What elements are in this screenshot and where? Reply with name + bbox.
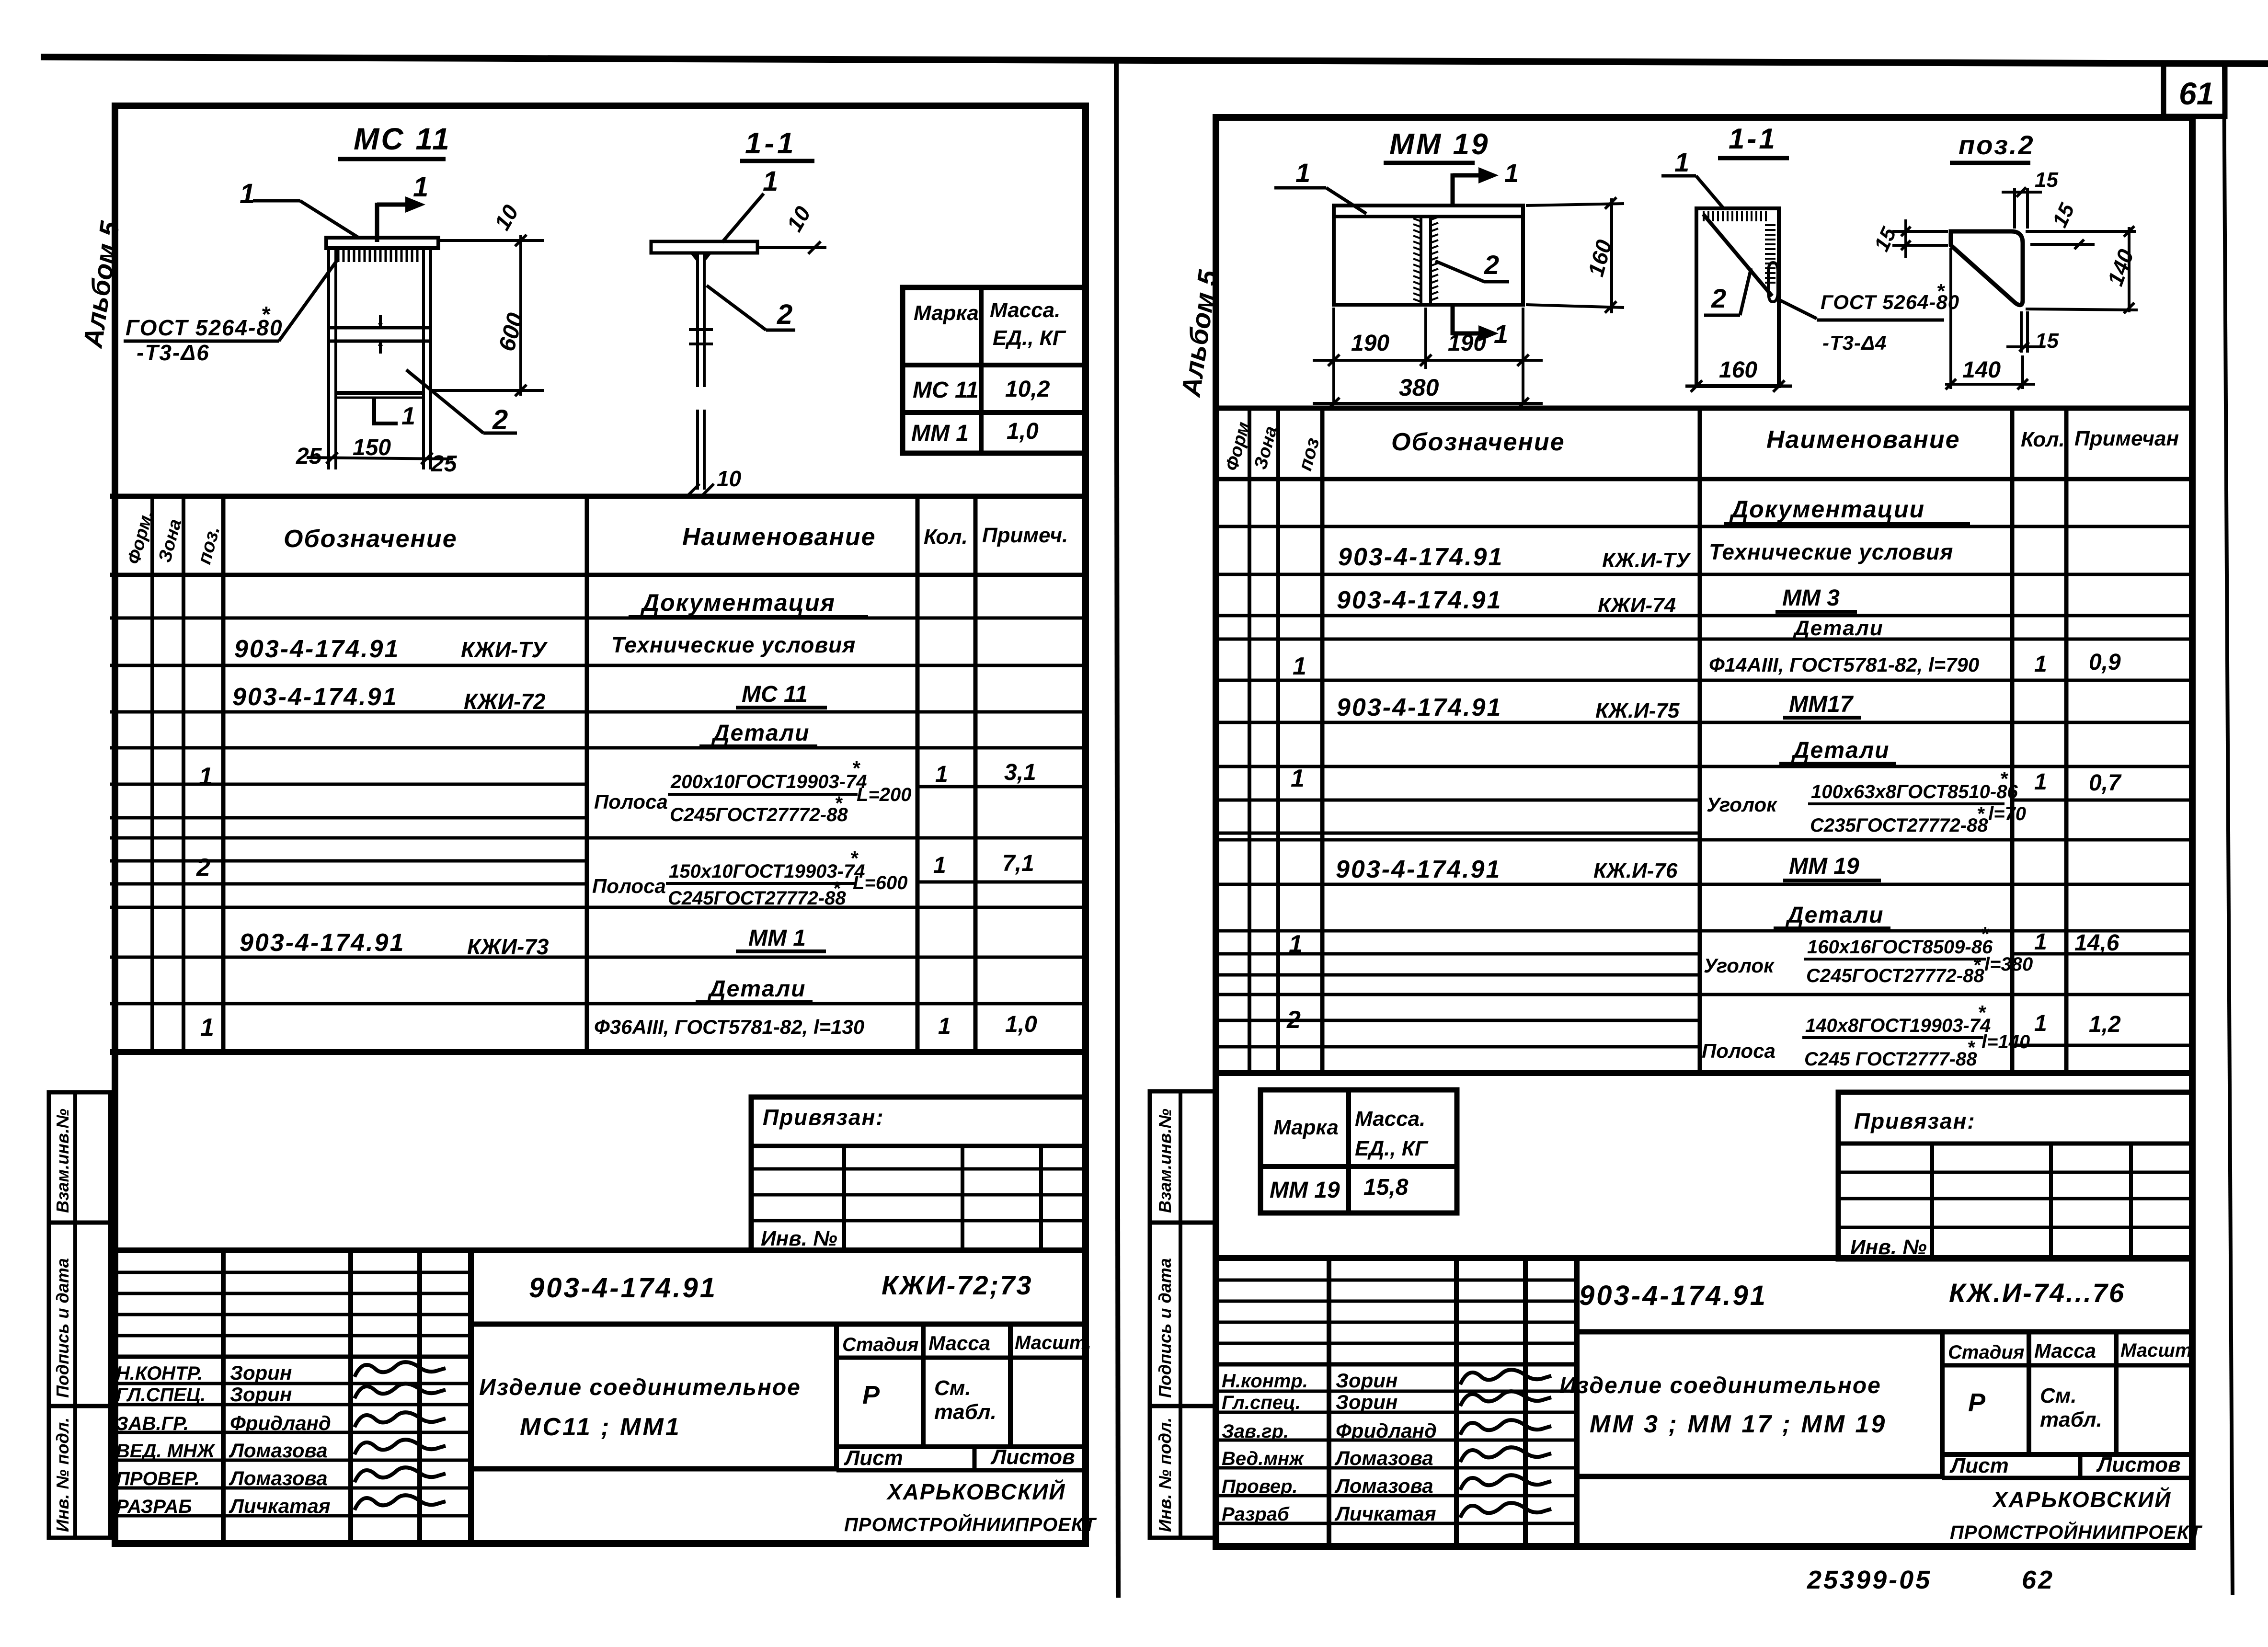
svg-text:Зорин: Зорин (1336, 1369, 1397, 1392)
svg-text:Гл.спец.: Гл.спец. (1222, 1392, 1301, 1413)
svg-text:табл.: табл. (2040, 1408, 2102, 1431)
svg-text:ММ 3 ; ММ 17 ; ММ 19: ММ 3 ; ММ 17 ; ММ 19 (1590, 1410, 1887, 1438)
svg-text:Инв. № подл.: Инв. № подл. (53, 1418, 72, 1532)
svg-text:поз.2: поз.2 (1959, 130, 2035, 160)
svg-text:1: 1 (1291, 765, 1305, 792)
svg-text:Ломазова: Ломазова (229, 1467, 328, 1489)
svg-text:l=380: l=380 (1984, 954, 2033, 975)
svg-text:Детали: Детали (707, 976, 806, 1002)
svg-text:ВЕД. МНЖ: ВЕД. МНЖ (116, 1441, 216, 1462)
svg-text:140х8ГОСТ19903-74: 140х8ГОСТ19903-74 (1805, 1015, 1991, 1036)
svg-text:140: 140 (1962, 357, 2001, 383)
svg-text:Примеч.: Примеч. (982, 524, 1068, 547)
svg-text:160х16ГОСТ8509-86: 160х16ГОСТ8509-86 (1807, 937, 1993, 958)
svg-text:Документации: Документации (1729, 496, 1925, 523)
svg-text:1,0: 1,0 (1005, 1012, 1037, 1037)
svg-text:ЕД., КГ: ЕД., КГ (1355, 1137, 1429, 1160)
svg-text:Технические условия: Технические условия (611, 632, 856, 657)
svg-text:Р: Р (1968, 1388, 1986, 1417)
svg-text:Масса.: Масса. (1355, 1107, 1425, 1131)
svg-text:Фридланд: Фридланд (1336, 1419, 1437, 1442)
svg-text:903-4-174.91: 903-4-174.91 (1336, 856, 1501, 883)
svg-text:МС11 ; ММ1: МС11 ; ММ1 (520, 1413, 681, 1441)
svg-text:Детали: Детали (1791, 738, 1890, 763)
svg-text:*: * (1973, 955, 1982, 976)
svg-text:Кол.: Кол. (924, 525, 968, 549)
svg-text:Масса: Масса (2034, 1339, 2096, 1362)
svg-text:Зорин: Зорин (1336, 1391, 1397, 1413)
svg-text:*: * (261, 302, 271, 327)
svg-text:190: 190 (1351, 331, 1389, 356)
svg-text:*: * (1977, 803, 1985, 824)
svg-text:903-4-174.91: 903-4-174.91 (240, 929, 405, 957)
svg-text:ММ 1: ММ 1 (911, 421, 969, 446)
svg-text:Листов: Листов (2096, 1453, 2181, 1476)
svg-text:Привязан:: Привязан: (1854, 1109, 1976, 1133)
svg-text:61: 61 (2179, 76, 2214, 111)
svg-text:903-4-174.91: 903-4-174.91 (1338, 543, 1503, 571)
svg-text:Провер.: Провер. (1222, 1476, 1298, 1497)
svg-text:КЖИ-ТУ: КЖИ-ТУ (461, 637, 548, 662)
svg-text:-Т3-Δ6: -Т3-Δ6 (137, 340, 210, 365)
svg-text:Ломазова: Ломазова (1334, 1475, 1433, 1497)
svg-text:Н.КОНТР.: Н.КОНТР. (116, 1363, 203, 1384)
svg-text:14,6: 14,6 (2074, 930, 2119, 956)
svg-text:См.: См. (934, 1376, 971, 1400)
svg-text:Полоса: Полоса (594, 790, 668, 813)
svg-text:*: * (850, 847, 859, 869)
svg-text:Ломазова: Ломазова (1334, 1447, 1433, 1469)
svg-text:Взам.инв.№: Взам.инв.№ (1155, 1109, 1175, 1213)
svg-text:Зорин: Зорин (230, 1361, 292, 1384)
svg-text:Ф36АIII, ГОСТ5781-82, l=130: Ф36АIII, ГОСТ5781-82, l=130 (594, 1016, 864, 1038)
svg-text:1: 1 (935, 762, 948, 787)
svg-text:Полоса: Полоса (592, 875, 666, 897)
svg-text:Изделие соединительное: Изделие соединительное (1559, 1373, 1881, 1398)
svg-text:*: * (835, 793, 843, 814)
svg-text:1: 1 (240, 178, 255, 209)
svg-text:КЖ.И-75: КЖ.И-75 (1595, 699, 1680, 722)
svg-text:Инв. №: Инв. № (761, 1227, 837, 1250)
svg-text:Масса: Масса (928, 1332, 990, 1354)
svg-text:1: 1 (2034, 652, 2047, 677)
svg-text:ХАРЬКОВСКИЙ: ХАРЬКОВСКИЙ (886, 1479, 1065, 1504)
svg-text:Уголок: Уголок (1707, 793, 1777, 816)
svg-text:Лист: Лист (844, 1446, 903, 1470)
svg-text:Детали: Детали (1792, 617, 1884, 640)
svg-text:ГОСТ 5264-80: ГОСТ 5264-80 (126, 315, 283, 340)
svg-text:1: 1 (1504, 159, 1519, 188)
svg-text:*: * (833, 878, 841, 899)
svg-text:*: * (2000, 767, 2008, 790)
svg-text:1: 1 (1295, 158, 1310, 188)
svg-text:Р: Р (862, 1381, 880, 1409)
svg-text:1,2: 1,2 (2089, 1012, 2121, 1037)
svg-text:ГЛ.СПЕЦ.: ГЛ.СПЕЦ. (116, 1384, 206, 1406)
svg-text:Подпись и дата: Подпись и дата (53, 1258, 72, 1398)
svg-text:Ломазова: Ломазова (229, 1439, 328, 1462)
svg-text:МС 11: МС 11 (913, 377, 979, 403)
svg-text:l=140: l=140 (1982, 1031, 2030, 1052)
svg-text:25: 25 (296, 444, 322, 469)
svg-text:табл.: табл. (934, 1400, 997, 1424)
svg-text:*: * (1967, 1037, 1976, 1058)
svg-text:25: 25 (431, 451, 458, 477)
svg-text:ХАРЬКОВСКИЙ: ХАРЬКОВСКИЙ (1992, 1487, 2171, 1512)
svg-text:Наименование: Наименование (682, 523, 876, 551)
svg-text:Вед.мнж: Вед.мнж (1222, 1448, 1305, 1469)
svg-text:1: 1 (938, 1014, 951, 1039)
svg-text:КЖ.И-74...76: КЖ.И-74...76 (1949, 1278, 2125, 1308)
svg-text:ММ 19: ММ 19 (1270, 1178, 1340, 1203)
svg-text:Зорин: Зорин (230, 1383, 292, 1406)
svg-text:ММ17: ММ17 (1789, 692, 1854, 717)
svg-text:1: 1 (401, 402, 415, 430)
svg-text:62: 62 (2022, 1566, 2054, 1594)
svg-text:1: 1 (763, 166, 778, 197)
svg-text:Фридланд: Фридланд (230, 1412, 331, 1434)
svg-text:2: 2 (777, 299, 792, 330)
svg-text:l=70: l=70 (1988, 803, 2026, 824)
svg-text:Масшт.: Масшт. (2120, 1340, 2197, 1361)
svg-text:Листов: Листов (990, 1445, 1075, 1469)
svg-text:10,2: 10,2 (1005, 377, 1050, 402)
svg-text:Обозначение: Обозначение (284, 525, 458, 553)
svg-text:*: * (1981, 923, 1989, 945)
svg-text:Детали: Детали (1785, 903, 1884, 928)
svg-text:Привязан:: Привязан: (763, 1105, 884, 1130)
svg-text:КЖИ-72: КЖИ-72 (464, 689, 546, 714)
svg-text:КЖ.И-ТУ: КЖ.И-ТУ (1602, 549, 1691, 572)
svg-text:С245ГОСТ27772-88: С245ГОСТ27772-88 (1806, 965, 1984, 986)
svg-text:Зав.гр.: Зав.гр. (1222, 1421, 1289, 1442)
svg-text:1: 1 (933, 853, 946, 878)
svg-text:1: 1 (413, 172, 428, 203)
svg-text:2: 2 (492, 404, 508, 435)
svg-text:Личкатая: Личкатая (1334, 1502, 1436, 1525)
svg-text:*: * (852, 757, 860, 779)
svg-text:ММ 19: ММ 19 (1789, 854, 1859, 879)
svg-text:РАЗРАБ: РАЗРАБ (116, 1496, 192, 1517)
svg-text:L=200: L=200 (857, 784, 912, 805)
svg-text:Стадия: Стадия (1948, 1342, 2024, 1363)
svg-text:Разраб: Разраб (1222, 1504, 1290, 1525)
svg-text:1-1: 1-1 (1729, 123, 1777, 155)
svg-text:КЖИ-73: КЖИ-73 (467, 934, 549, 959)
svg-text:903-4-174.91: 903-4-174.91 (1337, 694, 1502, 721)
svg-text:Н.контр.: Н.контр. (1222, 1371, 1308, 1392)
svg-text:Изделие соединительное: Изделие соединительное (479, 1375, 801, 1400)
svg-text:Наименование: Наименование (1766, 426, 1960, 454)
svg-text:Примечан: Примечан (2074, 427, 2179, 450)
svg-text:С245ГОСТ27772-88: С245ГОСТ27772-88 (670, 804, 848, 825)
svg-text:Взам.инв.№: Взам.инв.№ (53, 1109, 72, 1213)
svg-text:15: 15 (2035, 168, 2058, 192)
svg-text:1: 1 (1674, 147, 1689, 177)
svg-text:Кол.: Кол. (2021, 428, 2065, 451)
svg-text:Документация: Документация (640, 589, 836, 616)
svg-text:1: 1 (1289, 930, 1303, 958)
svg-text:903-4-174.91: 903-4-174.91 (232, 683, 398, 711)
svg-text:190: 190 (1448, 331, 1486, 356)
svg-text:Личкатая: Личкатая (229, 1495, 331, 1517)
svg-text:*: * (1978, 1001, 1986, 1024)
svg-text:С235ГОСТ27772-88: С235ГОСТ27772-88 (1810, 815, 1988, 836)
svg-text:Марка: Марка (1273, 1116, 1339, 1139)
svg-text:903-4-174.91: 903-4-174.91 (1337, 586, 1502, 614)
svg-text:380: 380 (1399, 374, 1439, 401)
svg-text:1: 1 (199, 763, 213, 790)
svg-text:ЗАВ.ГР.: ЗАВ.ГР. (116, 1413, 189, 1434)
svg-text:С245 ГОСТ2777-88: С245 ГОСТ2777-88 (1804, 1049, 1977, 1070)
svg-text:L=600: L=600 (853, 872, 908, 893)
svg-text:0,9: 0,9 (2089, 650, 2121, 675)
svg-text:КЖИ-72;73: КЖИ-72;73 (882, 1270, 1033, 1300)
svg-text:1-1: 1-1 (745, 127, 797, 160)
svg-text:1: 1 (2034, 929, 2047, 955)
svg-text:200х10ГОСТ19903-74: 200х10ГОСТ19903-74 (670, 771, 867, 792)
svg-text:1: 1 (2034, 1011, 2047, 1036)
svg-text:25399-05: 25399-05 (1807, 1566, 1932, 1594)
svg-text:Лист: Лист (1949, 1454, 2009, 1477)
svg-text:1: 1 (2034, 769, 2047, 795)
svg-text:МС 11: МС 11 (742, 682, 808, 707)
svg-text:1: 1 (1494, 320, 1508, 349)
svg-text:ММ 19: ММ 19 (1389, 128, 1489, 161)
svg-text:Масса.: Масса. (990, 298, 1060, 322)
svg-text:100х63х8ГОСТ8510-86: 100х63х8ГОСТ8510-86 (1811, 781, 2018, 802)
svg-text:КЖИ-74: КЖИ-74 (1598, 594, 1676, 617)
svg-text:См.: См. (2040, 1384, 2077, 1407)
svg-text:2: 2 (1484, 250, 1499, 280)
svg-text:903-4-174.91: 903-4-174.91 (529, 1272, 717, 1304)
svg-text:МС 11: МС 11 (354, 122, 451, 156)
svg-text:2: 2 (1286, 1006, 1301, 1034)
svg-text:7,1: 7,1 (1002, 851, 1034, 876)
svg-text:ПРОМСТРОЙНИИПРОЕКТ: ПРОМСТРОЙНИИПРОЕКТ (844, 1513, 1097, 1535)
svg-text:Подпись и дата: Подпись и дата (1155, 1258, 1175, 1398)
svg-text:903-4-174.91: 903-4-174.91 (1579, 1280, 1767, 1311)
svg-text:Ф14АIII, ГОСТ5781-82, l=790: Ф14АIII, ГОСТ5781-82, l=790 (1709, 653, 1979, 676)
svg-text:ПРОМСТРОЙНИИПРОЕКТ: ПРОМСТРОЙНИИПРОЕКТ (1950, 1521, 2203, 1543)
svg-text:Технические условия: Технические условия (1709, 539, 1953, 564)
svg-text:15,8: 15,8 (1363, 1175, 1409, 1200)
svg-text:С245ГОСТ27772-88: С245ГОСТ27772-88 (668, 888, 846, 909)
svg-text:903-4-174.91: 903-4-174.91 (234, 635, 400, 663)
svg-text:Инв. № подл.: Инв. № подл. (1155, 1418, 1175, 1532)
svg-text:Полоса: Полоса (1702, 1040, 1775, 1062)
svg-text:Уголок: Уголок (1704, 954, 1775, 977)
svg-text:2: 2 (196, 854, 210, 881)
svg-text:1,0: 1,0 (1007, 419, 1039, 444)
svg-text:10: 10 (717, 466, 742, 491)
svg-text:-Т3-Δ4: -Т3-Δ4 (1822, 332, 1887, 354)
svg-text:150: 150 (353, 435, 391, 460)
svg-text:*: * (1936, 280, 1945, 302)
svg-text:Масшт.: Масшт. (1015, 1332, 1091, 1353)
svg-text:160: 160 (1719, 357, 1757, 383)
svg-text:3,1: 3,1 (1004, 760, 1036, 785)
svg-text:Стадия: Стадия (842, 1334, 918, 1355)
svg-text:ММ 1: ММ 1 (748, 926, 806, 951)
svg-text:1: 1 (1293, 652, 1306, 680)
svg-text:ПРОВЕР.: ПРОВЕР. (116, 1468, 200, 1489)
svg-text:ММ 3: ММ 3 (1782, 585, 1840, 611)
svg-text:15: 15 (2035, 329, 2059, 353)
svg-text:ЕД., КГ: ЕД., КГ (993, 326, 1066, 350)
svg-text:Марка: Марка (914, 301, 979, 325)
svg-text:2: 2 (1711, 283, 1726, 313)
svg-text:КЖ.И-76: КЖ.И-76 (1593, 859, 1678, 882)
svg-text:0,7: 0,7 (2089, 770, 2122, 796)
svg-text:Обозначение: Обозначение (1391, 428, 1565, 456)
svg-text:1: 1 (200, 1014, 214, 1041)
svg-text:Детали: Детали (711, 721, 810, 746)
